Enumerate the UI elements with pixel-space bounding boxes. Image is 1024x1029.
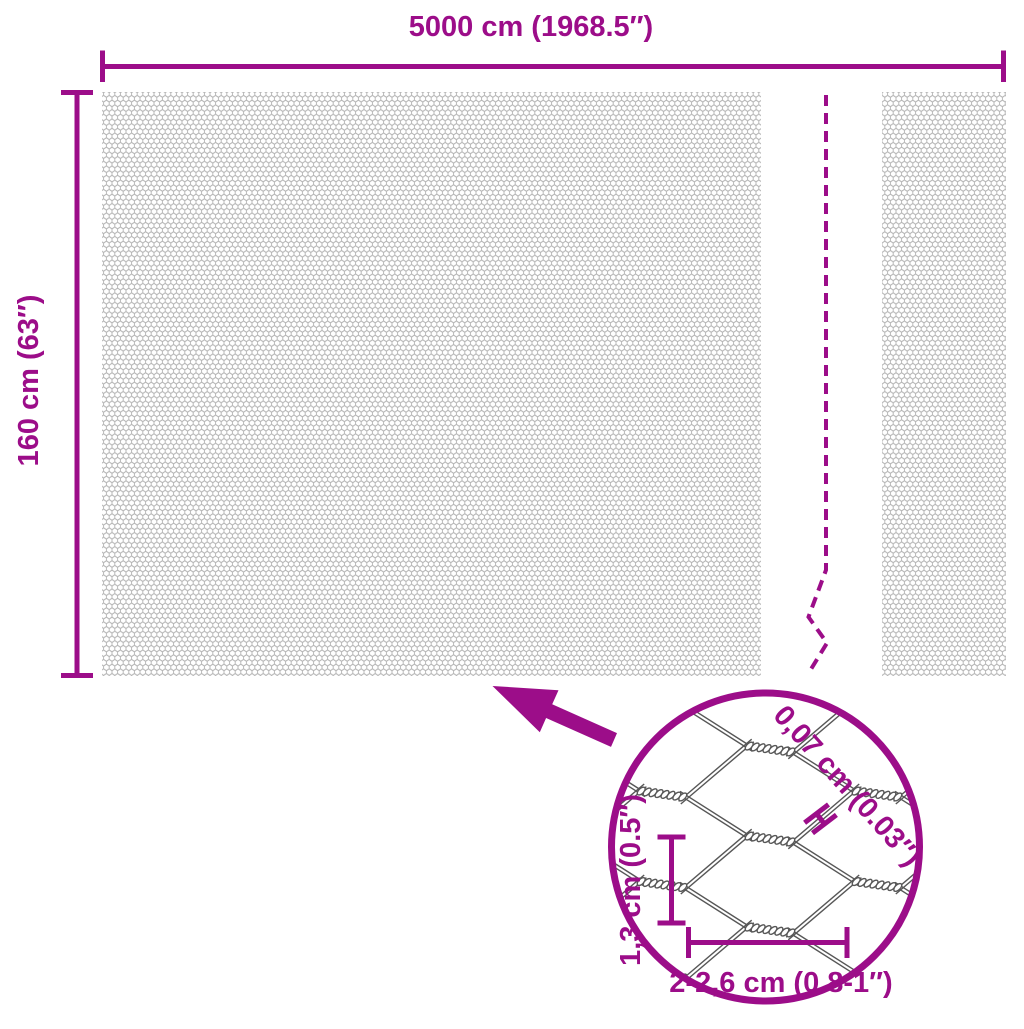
svg-text:160 cm (63″): 160 cm (63″) [13,295,45,467]
svg-text:5000 cm (1968.5″): 5000 cm (1968.5″) [409,11,653,43]
svg-text:2-2,6 cm (0.8-1″): 2-2,6 cm (0.8-1″) [669,967,892,999]
svg-text:1,3 cm (0.5″): 1,3 cm (0.5″) [615,794,647,966]
